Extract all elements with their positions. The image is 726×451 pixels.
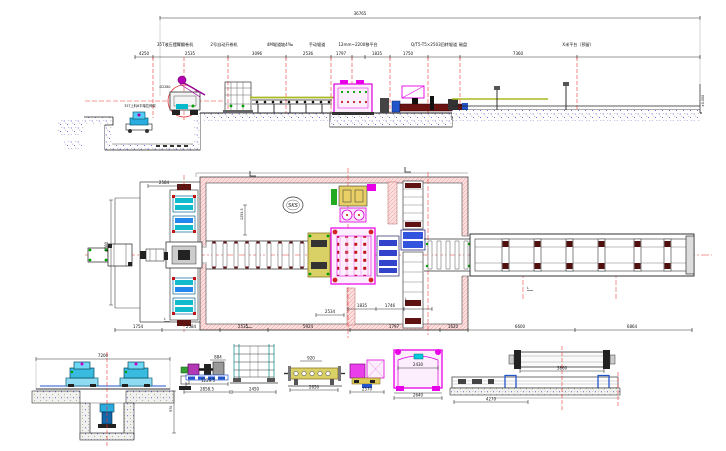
detail-dim: 920 [307,356,315,361]
stamp-logo: SKS [283,197,303,213]
detail-dim: 2450 [249,387,260,392]
straightener-elevation [332,80,374,115]
foundation-pit-elevation [58,113,702,150]
plan-dim: 1835 [357,303,368,308]
elevation-dim: 1835 [372,51,383,56]
uncoiler-stand [223,82,253,114]
detail-dim: 970 [169,406,173,412]
cyan-unit [173,196,195,212]
equipment-label-tilter: 35T液压摆臂翻卷机 [157,41,193,47]
entry-roller-conveyor-elevation [250,98,334,114]
elevation-dim: 2536 [303,51,314,56]
section-cut-marks-top [250,167,411,176]
equipment-label-magnet: 磁盘 [459,41,467,47]
plan-dim: 6864 [627,324,638,329]
section-mark: L [246,323,248,327]
elevation-view: 36765 4250 2535 3096 2536 1797 1835 1750… [58,11,705,150]
plan-dim: 5924 [303,324,314,329]
detail-dim: 1229.5 [201,378,215,383]
plan-dim: 2534 [325,309,336,314]
straightener-drive-plan [331,184,376,222]
elevation-overall-dim: 36765 [354,11,367,16]
section-mark: L [164,317,166,321]
plan-dim: 1746 [385,303,396,308]
cyan-unit [173,216,195,232]
general-arrangement-drawing: 36765 4250 2535 3096 2536 1797 1835 1750… [0,0,726,451]
detail-straightener: 2430 2640 [394,349,442,400]
cad-drawing-canvas: 36765 4250 2535 3096 2536 1797 1835 1750… [0,0,726,451]
plan-dim: 6600 [515,324,526,329]
equipment-label-manual-roller: 手动辊道 [309,41,325,47]
section-mark: L [405,297,407,301]
coil-car [126,112,152,133]
trolley-right [120,362,152,387]
elevation-dim: 1797 [336,51,347,56]
detail-dim: 2858.5 [200,387,214,392]
trolley-left [66,362,98,387]
plan-dim: 4780 [104,241,109,252]
detail-dim: 2640 [413,393,424,398]
detail-pinch-unit: 2570 [350,360,384,394]
cyan-unit [173,278,195,294]
detail-dim: 2650 [309,385,320,390]
cyan-unit [173,298,195,314]
detail-dim: 4270 [486,397,497,402]
equipment-label-shift-platform: 12mm~2200移平台 [338,41,377,47]
elevation-dim: 1750 [403,51,414,56]
plan-dim: 2584 [159,180,170,185]
elevation-dim: 4250 [139,51,150,56]
plan-dim: 1620 [448,324,459,329]
detail-dim: 2570 [362,387,373,392]
equipment-label-turn-roller: Q/T5-T5×2503回转辊道 [411,41,457,47]
straightener-plan [331,228,375,284]
plan-dim: 1797 [389,324,400,329]
uncoiler-cross-machine-plan [140,184,202,326]
coil-tilter-machine: Ø2280 35T上料6平轴拉伸架 [124,76,205,117]
stamp-logo-text: SKS [288,203,298,209]
center-hub [160,242,202,268]
feed-unit-plan [308,233,330,277]
detail-dim: 884 [214,355,222,360]
plan-dim: 1754 [133,324,144,329]
elevation-dim: 7360 [513,51,524,56]
plan-view: SKS 2584 1293.5 4780 2534 1835 1746 1754… [85,167,712,338]
plan-dim: 2584 [186,324,197,329]
detail-uncoiler-section: 7200 [32,353,176,440]
detail-views: 7200 [32,344,620,447]
detail-outlet-table: 3860 4270 [450,350,620,404]
elevation-dim: 3096 [252,51,263,56]
transfer-machine-plan [401,181,425,328]
level-mark: ±0.000 [701,95,705,107]
transfer-rack-plan [470,234,694,276]
tilter-circle-dim: Ø2280 [160,84,171,89]
detail-dim: 2430 [413,362,424,367]
pinch-unit-plan [377,236,399,276]
equipment-label-uncoiler: 2号自动开卷机 [210,41,237,47]
detail-stand-frame: 2450 [230,344,278,394]
plan-dim: 1293.5 [240,208,244,220]
section-mark: L [527,286,529,290]
outlet-table-elevation: ±0.000 [452,82,705,116]
detail-roller-table: 920 2650 [284,356,345,393]
equipment-label-platform-reserved: X米平台（预留） [562,41,593,47]
elevation-dim: 2535 [185,51,196,56]
equipment-label-roller: 4M辊道坡4‰ [267,41,294,47]
inlet-assembly-plan [88,244,132,266]
tilter-note: 35T上料6平轴拉伸架 [124,103,156,108]
